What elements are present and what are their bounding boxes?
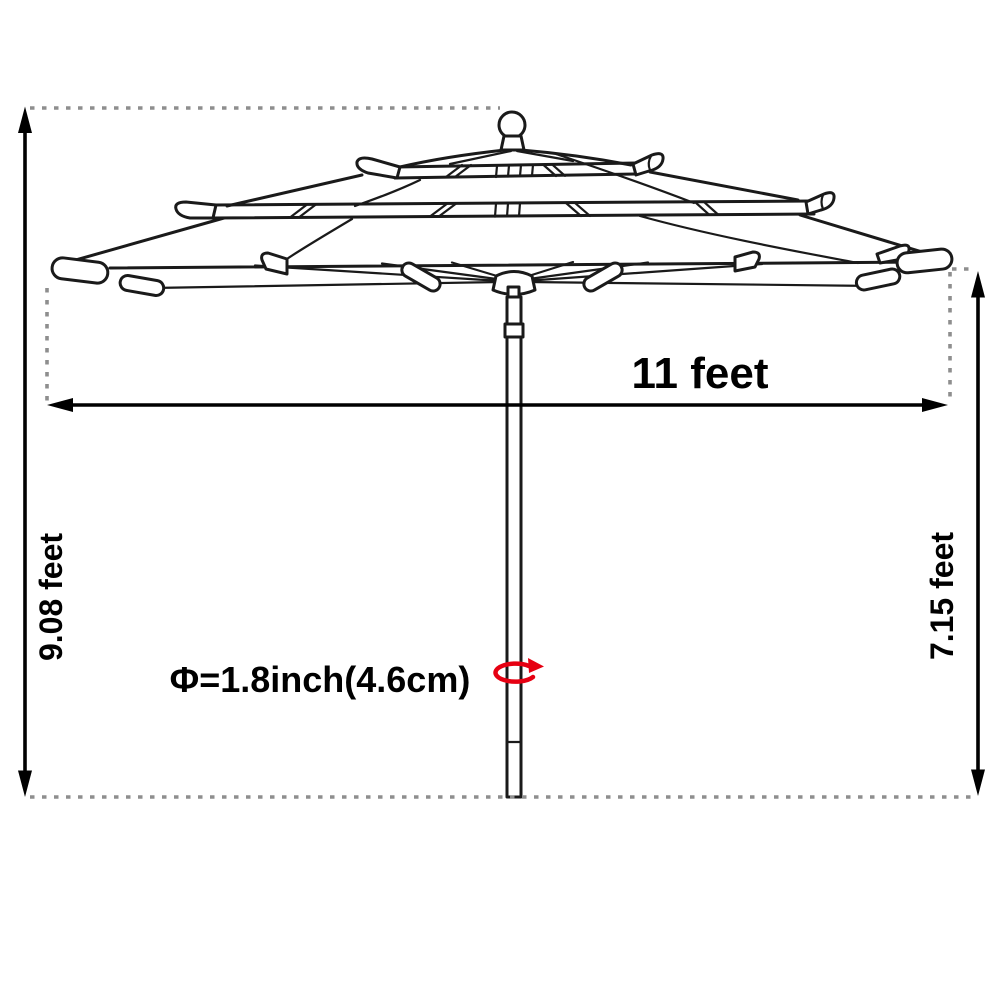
canopy-width-dimension: 11 feet [47, 349, 948, 412]
umbrella-pole [505, 297, 523, 797]
overall-height-label: 9.08 feet [33, 533, 69, 661]
pole-diameter-label: Φ=1.8inch(4.6cm) [170, 659, 471, 700]
pole-height-dimension: 7.15 feet [924, 271, 985, 796]
umbrella-dimension-diagram: 9.08 feet 11 feet 7.15 feet Φ=1.8inch(4.… [0, 0, 1001, 1001]
arrow-right-icon [922, 398, 948, 412]
canopy-tier-2 [176, 154, 834, 218]
arrow-down-icon [971, 770, 985, 797]
dimension-annotations: 9.08 feet 11 feet 7.15 feet Φ=1.8inch(4.… [18, 107, 985, 798]
pole-hub [493, 272, 535, 299]
rotation-arrowhead [528, 658, 544, 673]
finial-ball [499, 112, 525, 150]
arrow-up-icon [18, 107, 32, 134]
overall-height-dimension: 9.08 feet [18, 107, 69, 798]
canopy-width-label: 11 feet [632, 349, 769, 398]
pole-height-label: 7.15 feet [924, 532, 960, 660]
arrow-up-icon [971, 271, 985, 298]
arrow-left-icon [47, 398, 73, 412]
arrow-down-icon [18, 771, 32, 798]
